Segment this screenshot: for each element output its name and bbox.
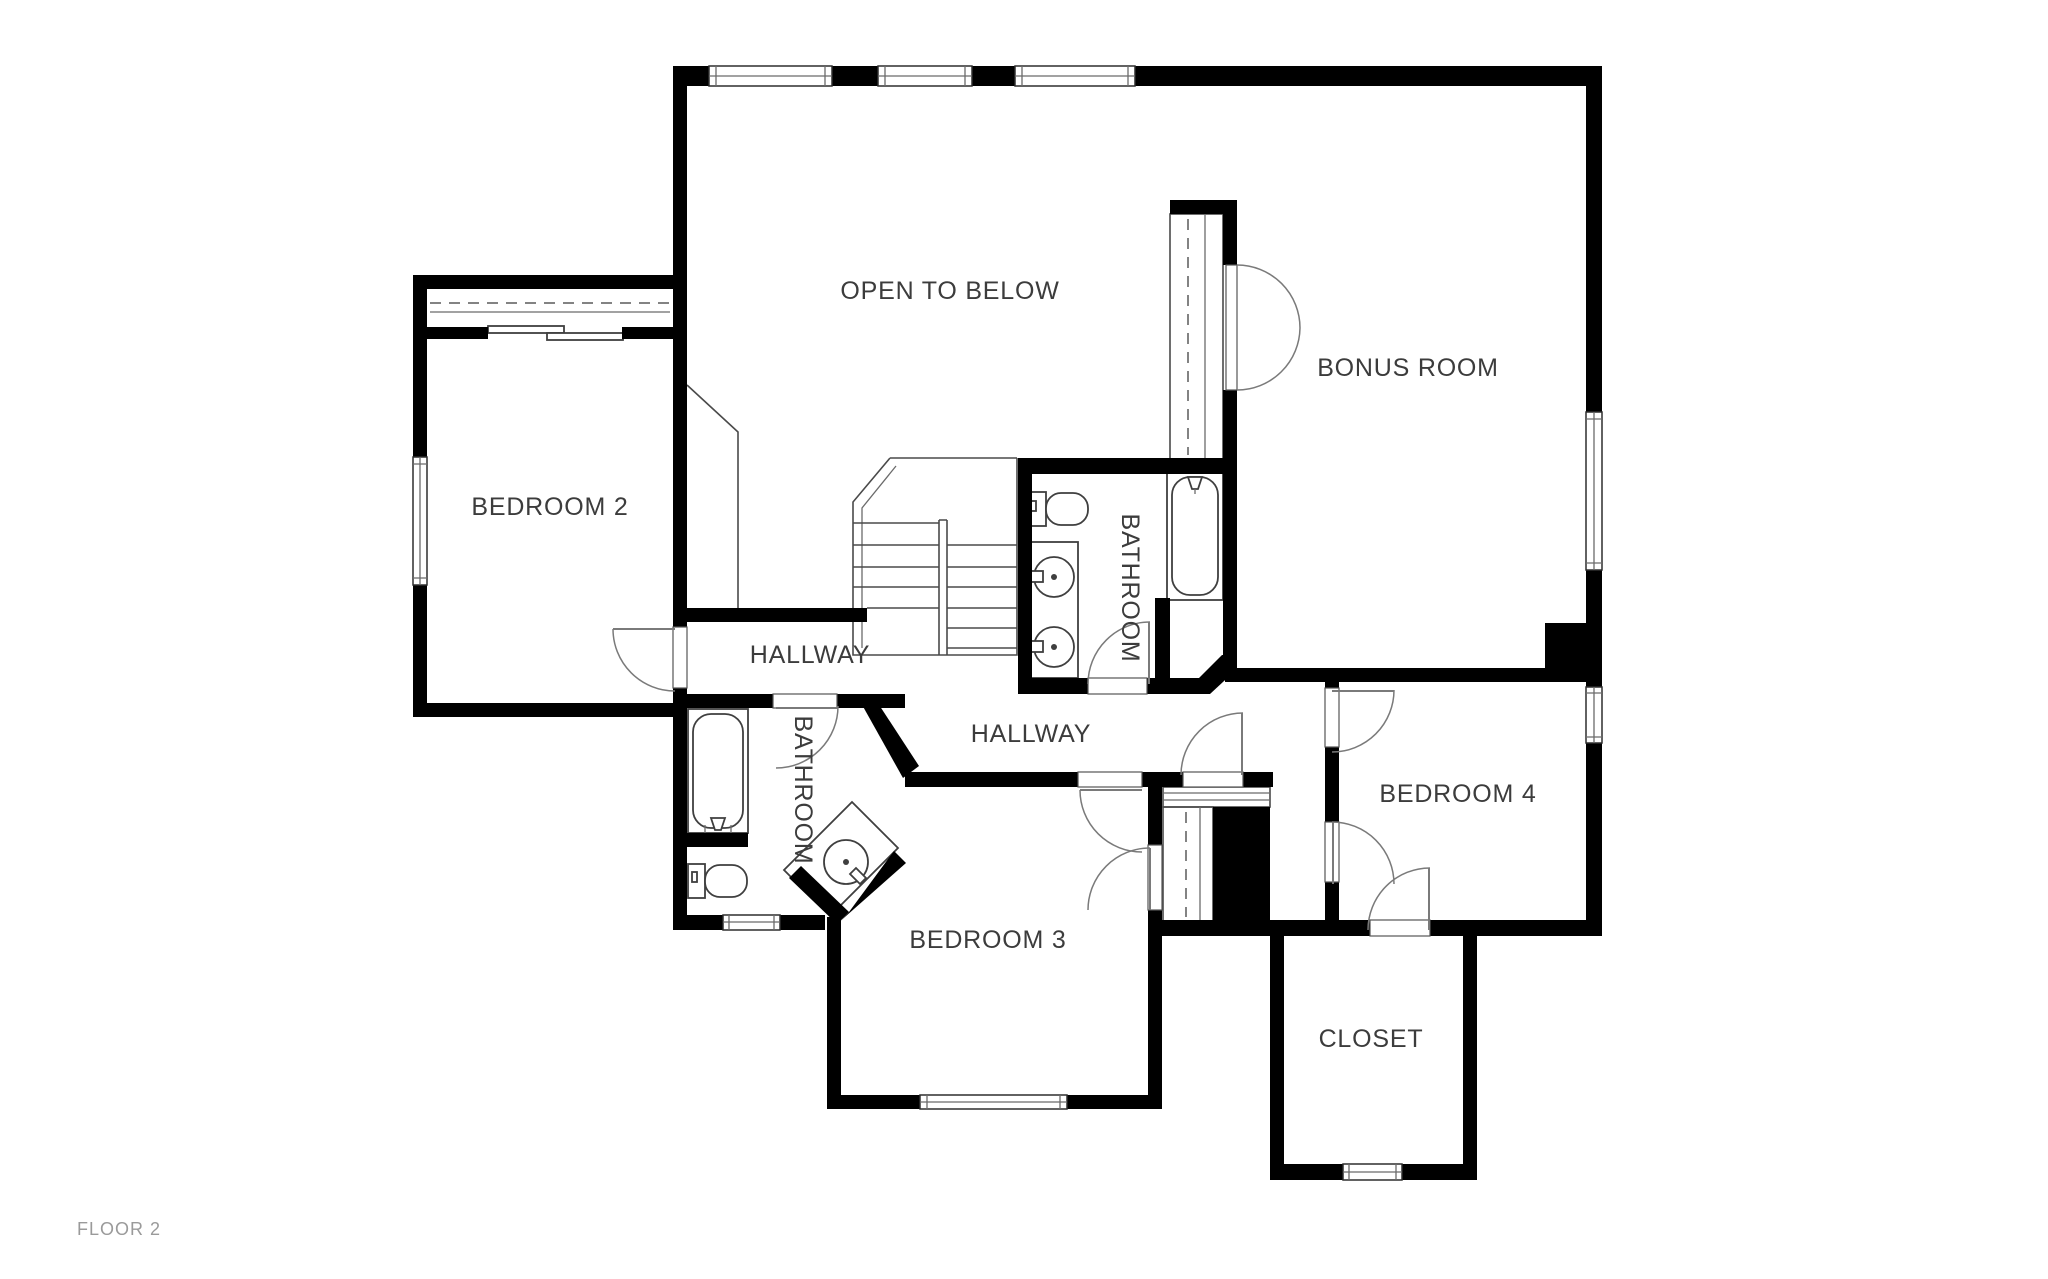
floor-title: FLOOR 2 <box>77 1219 161 1239</box>
stairs <box>853 458 1017 655</box>
room-label-bedroom-3: BEDROOM 3 <box>909 926 1066 954</box>
bonus-room-closet <box>1170 214 1223 460</box>
room-label-open-to-below: OPEN TO BELOW <box>840 277 1059 305</box>
window <box>709 66 832 86</box>
door-bedroom-4-lower <box>1325 822 1394 884</box>
window <box>920 1095 1067 1109</box>
room-label-bedroom-4: BEDROOM 4 <box>1379 780 1536 808</box>
bedroom-3-closet <box>1163 807 1213 922</box>
room-label-bathroom-upper: BATHROOM <box>1116 514 1144 663</box>
floor-plan: OPEN TO BELOW BONUS ROOM BEDROOM 2 BATHR… <box>0 0 2048 1279</box>
door-bedroom-3-closet <box>1088 845 1162 910</box>
door-linen-closet <box>1181 713 1243 787</box>
window <box>1586 687 1602 743</box>
walls <box>413 66 1602 1180</box>
room-label-bathroom-lower: BATHROOM <box>789 716 817 865</box>
room-label-bedroom-2: BEDROOM 2 <box>471 493 628 521</box>
room-label-hallway-lower: HALLWAY <box>971 720 1091 748</box>
bathtub-symbol <box>1167 472 1223 600</box>
bathtub-symbol <box>688 709 748 833</box>
linen-closet <box>1163 787 1270 807</box>
door-bedroom-4-upper <box>1325 688 1394 752</box>
solid-void-block <box>1213 807 1270 922</box>
room-label-bonus-room: BONUS ROOM <box>1317 354 1499 382</box>
room-label-closet: CLOSET <box>1319 1025 1424 1053</box>
window <box>1015 66 1135 86</box>
open-to-below-boundary <box>687 385 738 608</box>
window <box>413 457 427 585</box>
door-bedroom-2 <box>613 627 687 691</box>
door-bonus-room-double <box>1226 265 1300 390</box>
door-closet <box>1368 868 1430 936</box>
room-label-hallway-upper: HALLWAY <box>750 641 870 669</box>
sliding-door-panel <box>547 333 623 340</box>
double-vanity-symbol <box>1030 542 1078 678</box>
window <box>1343 1164 1402 1180</box>
door-bedroom-3 <box>1078 772 1142 852</box>
toilet-symbol <box>688 864 747 898</box>
toilet-symbol <box>1028 492 1088 526</box>
window <box>1586 412 1602 570</box>
window <box>878 66 972 86</box>
windows <box>413 66 1602 1180</box>
window <box>723 915 780 930</box>
sliding-door-panel <box>488 326 564 333</box>
